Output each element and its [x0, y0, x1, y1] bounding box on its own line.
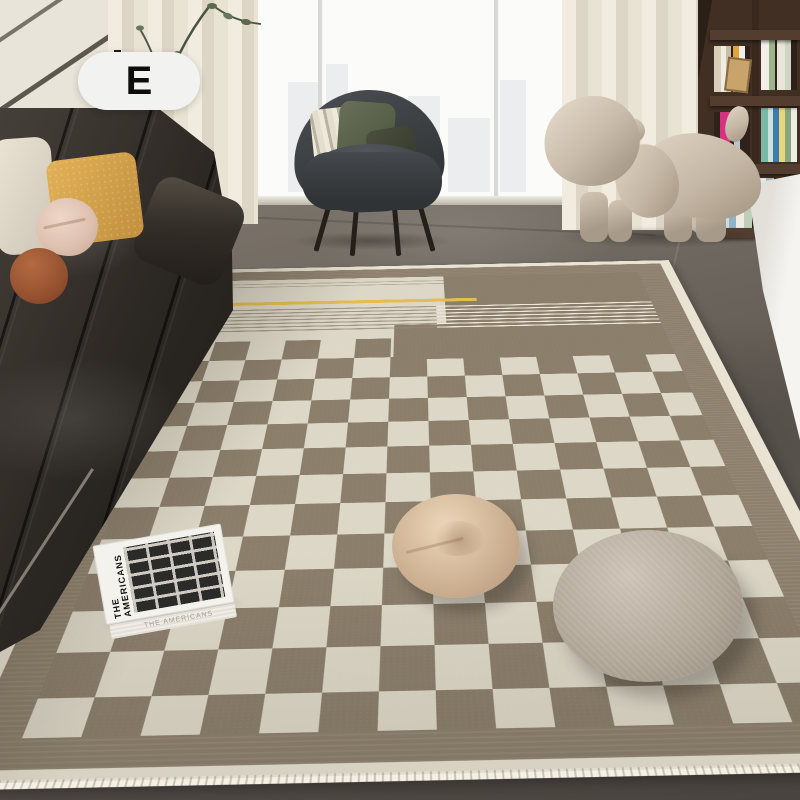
chair-front	[302, 152, 442, 210]
picture-frame	[724, 57, 752, 94]
book-spines	[761, 40, 797, 90]
dog-tail	[722, 104, 752, 144]
rust-ball-pillow	[10, 248, 68, 304]
dog-leg	[580, 192, 608, 242]
variant-badge-label: E	[126, 61, 153, 101]
puppy-shaped-stool	[544, 96, 769, 252]
floor-cushion-small	[392, 494, 520, 598]
book-cover-photo	[123, 532, 225, 613]
lounge-armchair	[288, 86, 458, 256]
living-room-scene: THE AMERICANS THE AMERICANS E	[0, 0, 800, 800]
floor-cushion-large	[553, 530, 743, 682]
blush-round-pillow	[36, 198, 98, 256]
variant-badge: E	[78, 52, 200, 110]
city-building	[500, 80, 526, 192]
shelf-board	[710, 30, 800, 40]
window-mullion	[494, 0, 497, 200]
